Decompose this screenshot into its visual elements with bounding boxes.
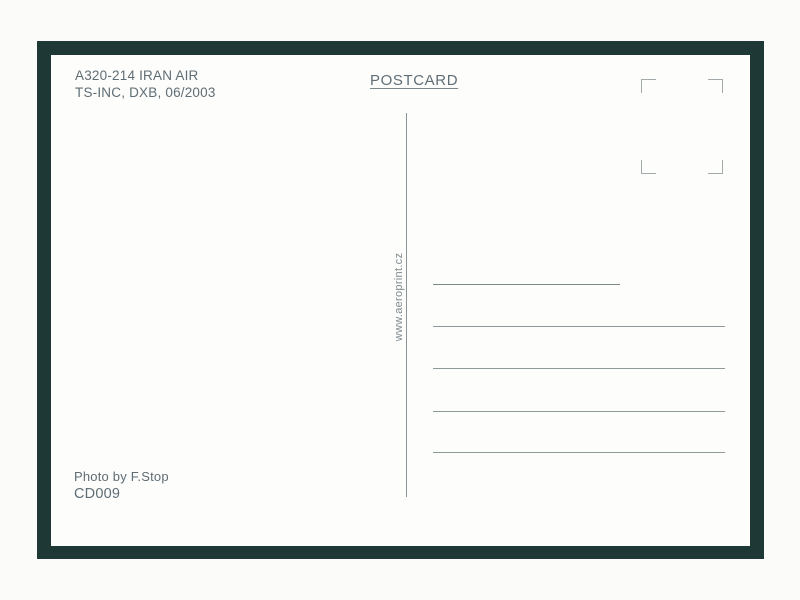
caption-registration-line: TS-INC, DXB, 06/2003 xyxy=(75,84,216,101)
address-writing-line xyxy=(433,452,725,453)
stamp-corner-mark-bottom-left xyxy=(641,160,656,174)
stamp-corner-mark-top-left xyxy=(641,79,656,93)
postcard-title: POSTCARD xyxy=(370,72,458,89)
stamp-corner-mark-top-right xyxy=(708,79,723,93)
scan-background-frame: A320-214 IRAN AIR TS-INC, DXB, 06/2003 P… xyxy=(37,41,764,559)
postcard-back: A320-214 IRAN AIR TS-INC, DXB, 06/2003 P… xyxy=(51,55,750,546)
address-writing-line xyxy=(433,284,620,285)
photographer-credit: Photo by F.Stop xyxy=(74,468,169,485)
publisher-watermark: www.aeroprint.cz xyxy=(393,244,405,350)
stamp-box xyxy=(641,79,723,174)
address-writing-line xyxy=(433,368,725,369)
caption-aircraft-line: A320-214 IRAN AIR xyxy=(75,67,216,84)
postcard-scan: A320-214 IRAN AIR TS-INC, DXB, 06/2003 P… xyxy=(0,0,800,600)
stamp-corner-mark-bottom-right xyxy=(708,160,723,174)
address-writing-line xyxy=(433,411,725,412)
photo-caption: A320-214 IRAN AIR TS-INC, DXB, 06/2003 xyxy=(75,67,216,101)
center-divider-line xyxy=(406,113,407,497)
photo-credit: Photo by F.Stop CD009 xyxy=(74,468,169,503)
catalog-number: CD009 xyxy=(74,485,169,503)
address-writing-line xyxy=(433,326,725,327)
